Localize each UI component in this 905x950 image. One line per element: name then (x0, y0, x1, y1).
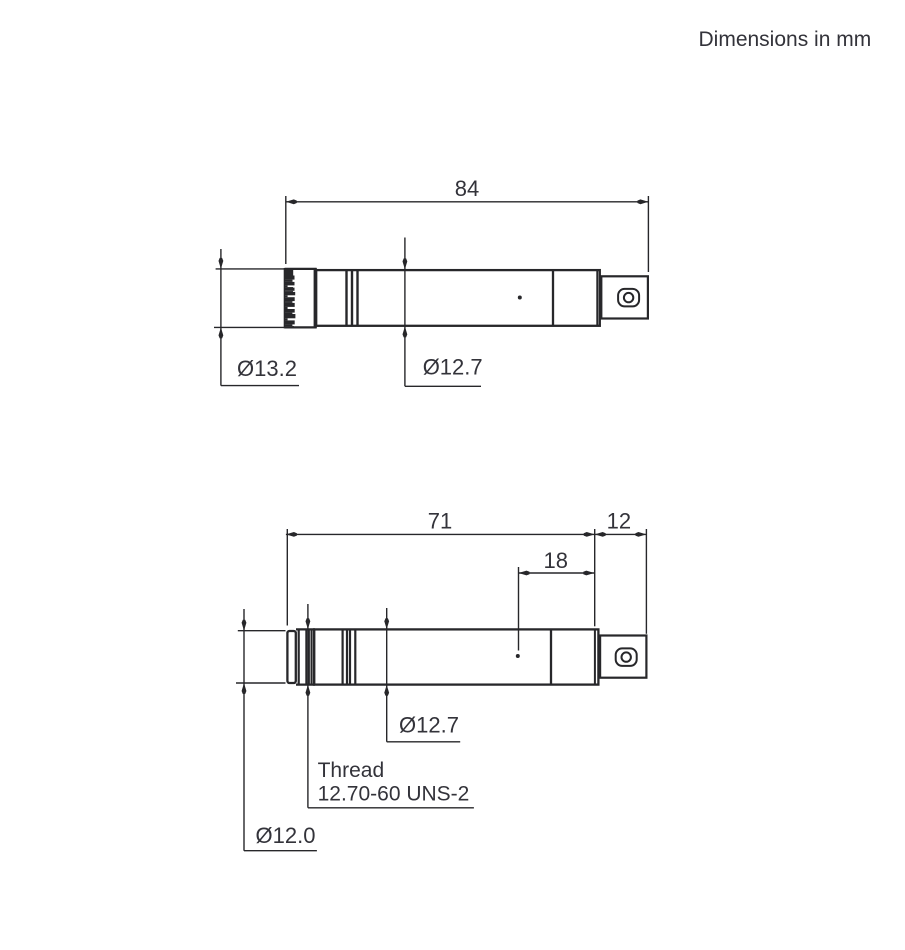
svg-text:71: 71 (428, 509, 452, 534)
svg-text:18: 18 (543, 548, 567, 573)
svg-text:Thread: Thread (318, 759, 385, 782)
svg-text:Ø12.7: Ø12.7 (399, 713, 459, 738)
svg-text:Dimensions in mm: Dimensions in mm (699, 28, 872, 51)
svg-text:84: 84 (455, 176, 479, 201)
svg-text:12: 12 (607, 509, 631, 534)
svg-text:Ø12.0: Ø12.0 (256, 823, 316, 848)
svg-text:Ø12.7: Ø12.7 (423, 355, 483, 380)
svg-text:Ø13.2: Ø13.2 (237, 356, 297, 381)
svg-text:12.70-60 UNS-2: 12.70-60 UNS-2 (318, 783, 470, 806)
